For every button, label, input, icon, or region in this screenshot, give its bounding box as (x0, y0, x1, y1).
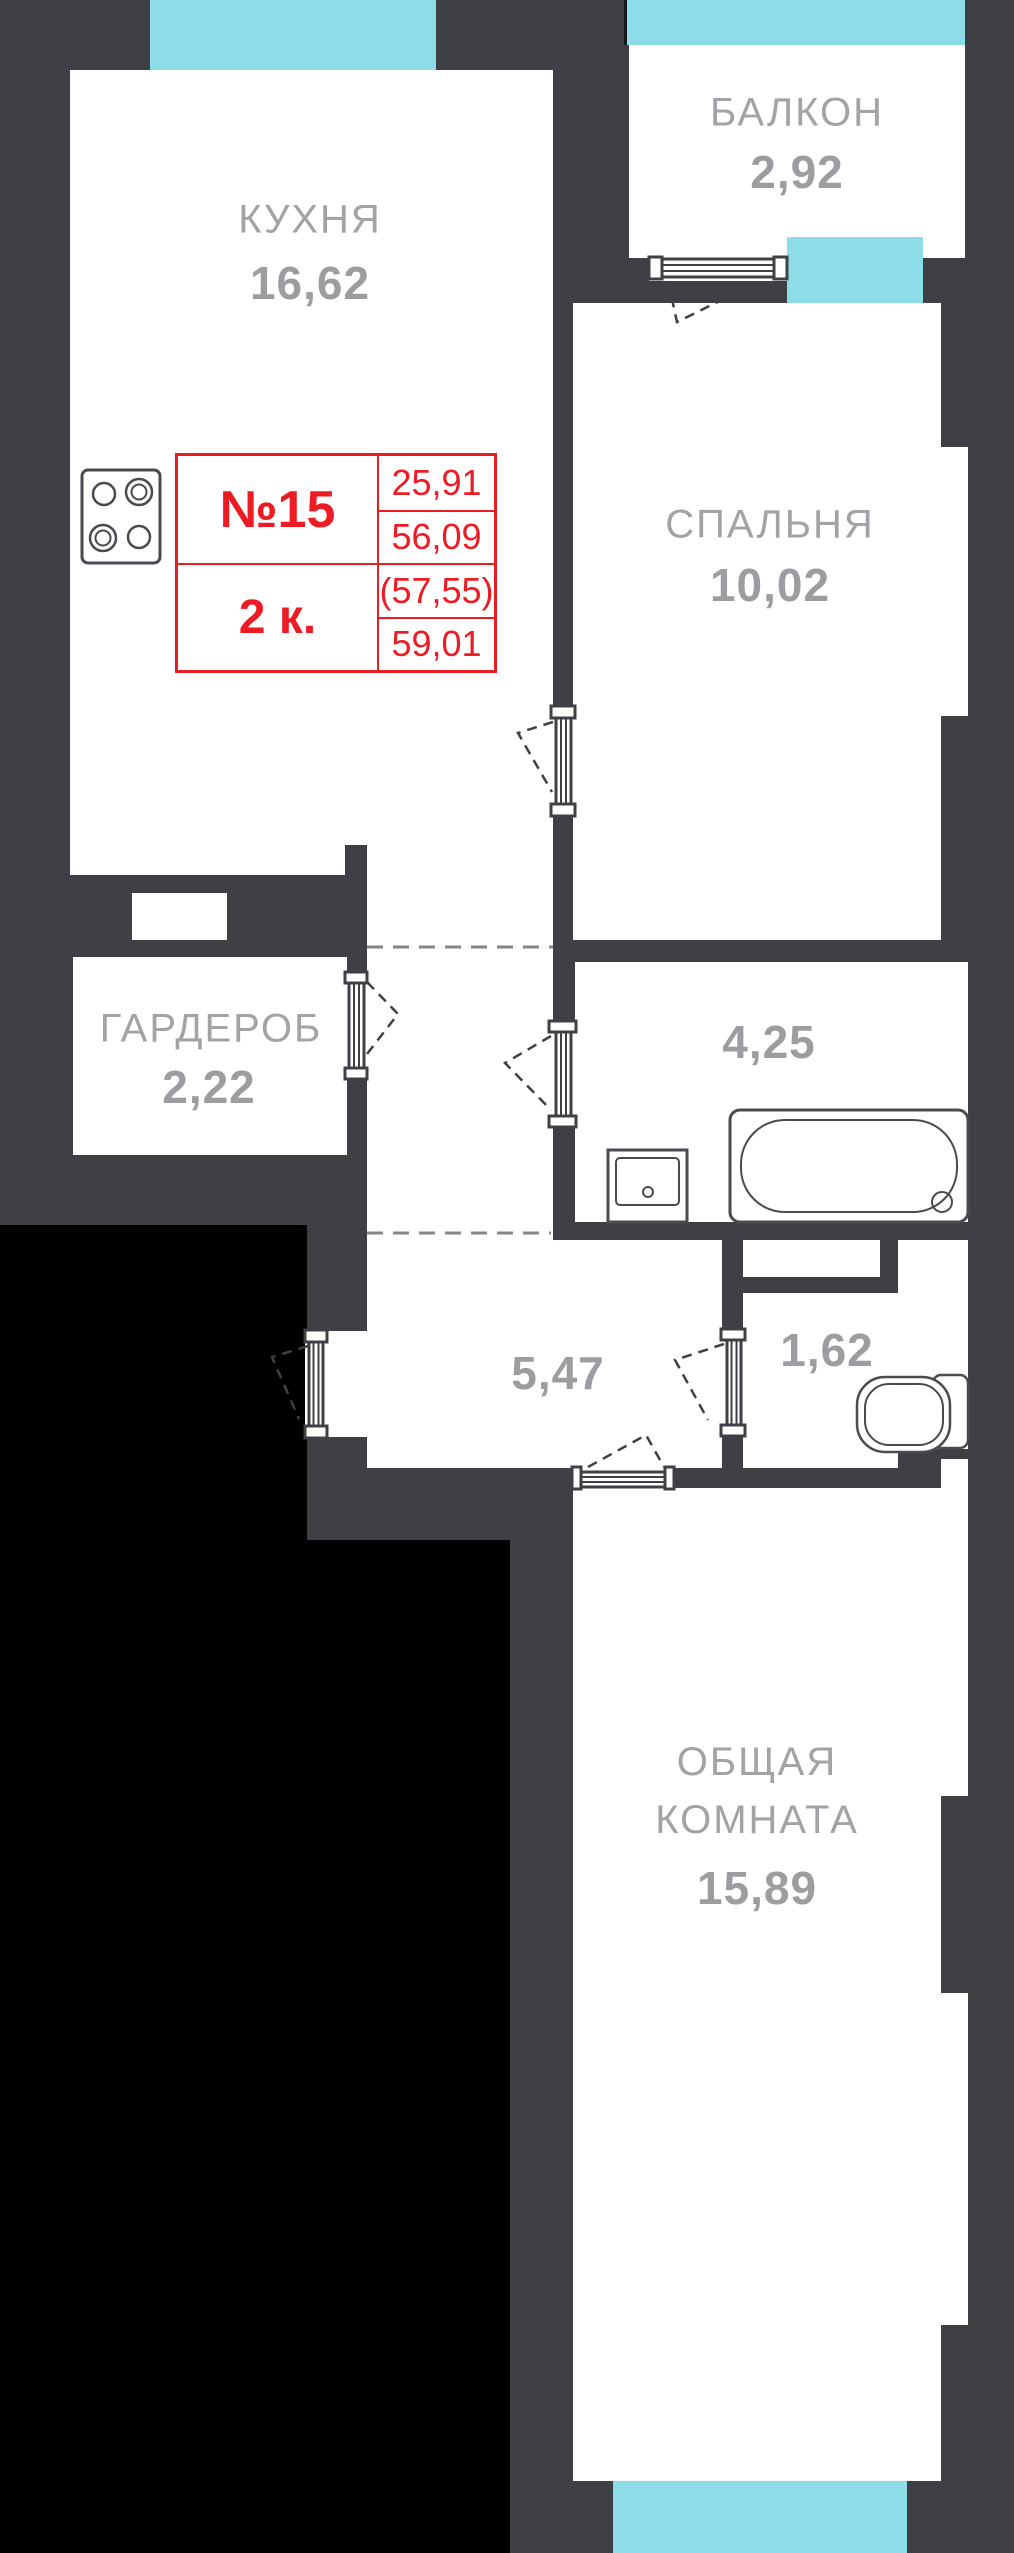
wall-stub-kitchen-corridor (345, 845, 367, 940)
bedroom-area: 10,02 (710, 558, 830, 612)
area-total-value: 59,01 (377, 617, 494, 671)
area-living-value: 25,91 (377, 456, 494, 510)
living-window (613, 2481, 907, 2553)
kitchen-label: КУХНЯ (238, 198, 382, 243)
area-with-coef-value: (57,55) (377, 563, 494, 617)
balcony-window (627, 0, 965, 45)
bedroom-label: СПАЛЬНЯ (665, 503, 874, 548)
living-niche-bottom (941, 1993, 968, 2325)
balcony-window-edge (624, 0, 627, 45)
room-bathroom (575, 962, 968, 1222)
apartment-number: №15 (178, 456, 377, 563)
wc-right-niche (898, 1240, 968, 1449)
wc-door-opening (721, 1329, 745, 1436)
room-wardrobe (73, 957, 347, 1155)
apartment-info-box: №15 25,91 56,09 2 к. (57,55) 59,01 (175, 453, 497, 673)
bedroom-window-niche (941, 447, 968, 716)
bedroom-door-opening (551, 706, 575, 816)
living-area: 15,89 (697, 1861, 817, 1915)
living-label-line1: ОБЩАЯ (677, 1733, 837, 1791)
room-bedroom (573, 303, 941, 940)
kitchen-window (150, 0, 436, 70)
kitchen-area: 16,62 (250, 256, 370, 310)
hallway-area: 5,47 (511, 1346, 605, 1400)
kitchen-shaft-niche (132, 893, 227, 940)
balcony-area: 2,92 (750, 145, 844, 199)
living-label-line2: КОМНАТА (655, 1791, 859, 1849)
shaft-above-wc (743, 1240, 880, 1277)
area-flat-value: 56,09 (377, 510, 494, 564)
outside-area-bottom (307, 1540, 510, 2553)
wardrobe-door-opening (345, 972, 367, 1079)
room-wc (743, 1293, 898, 1468)
floor-plan: БАЛКОН 2,92 КУХНЯ 16,62 СПАЛЬНЯ 10,02 ГА… (0, 0, 1014, 2553)
bedroom-balcony-window (787, 237, 923, 303)
room-living (573, 1488, 941, 2481)
outside-area-left (0, 1225, 307, 2553)
bathroom-area: 4,25 (722, 1015, 816, 1069)
bathroom-door-opening (549, 1021, 576, 1127)
living-niche-top (941, 1459, 968, 1796)
entrance-door-opening (305, 1331, 367, 1437)
living-door-opening (572, 1466, 674, 1490)
balcony-label: БАЛКОН (710, 91, 884, 136)
wardrobe-label: ГАРДЕРОБ (100, 1007, 323, 1052)
apartment-type: 2 к. (178, 563, 377, 670)
wardrobe-area: 2,22 (162, 1060, 256, 1114)
wc-area: 1,62 (780, 1323, 874, 1377)
balcony-door-opening (649, 255, 787, 281)
